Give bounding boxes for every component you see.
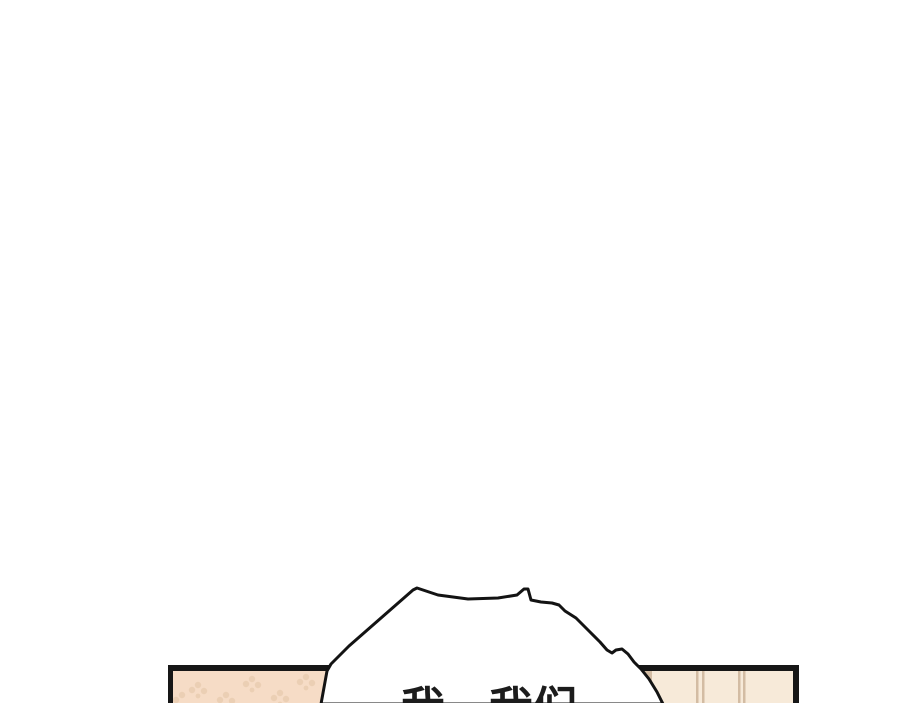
right-panel-right-border [793,665,799,703]
left-panel-top-border [168,665,335,671]
panel-artwork [0,0,900,703]
comic-page: 我…我们 [0,0,900,703]
right-panel-top-border [636,665,799,671]
left-panel-left-border [168,665,173,703]
left-panel [168,665,335,703]
speech-bubble-text: 我…我们 [401,687,577,703]
